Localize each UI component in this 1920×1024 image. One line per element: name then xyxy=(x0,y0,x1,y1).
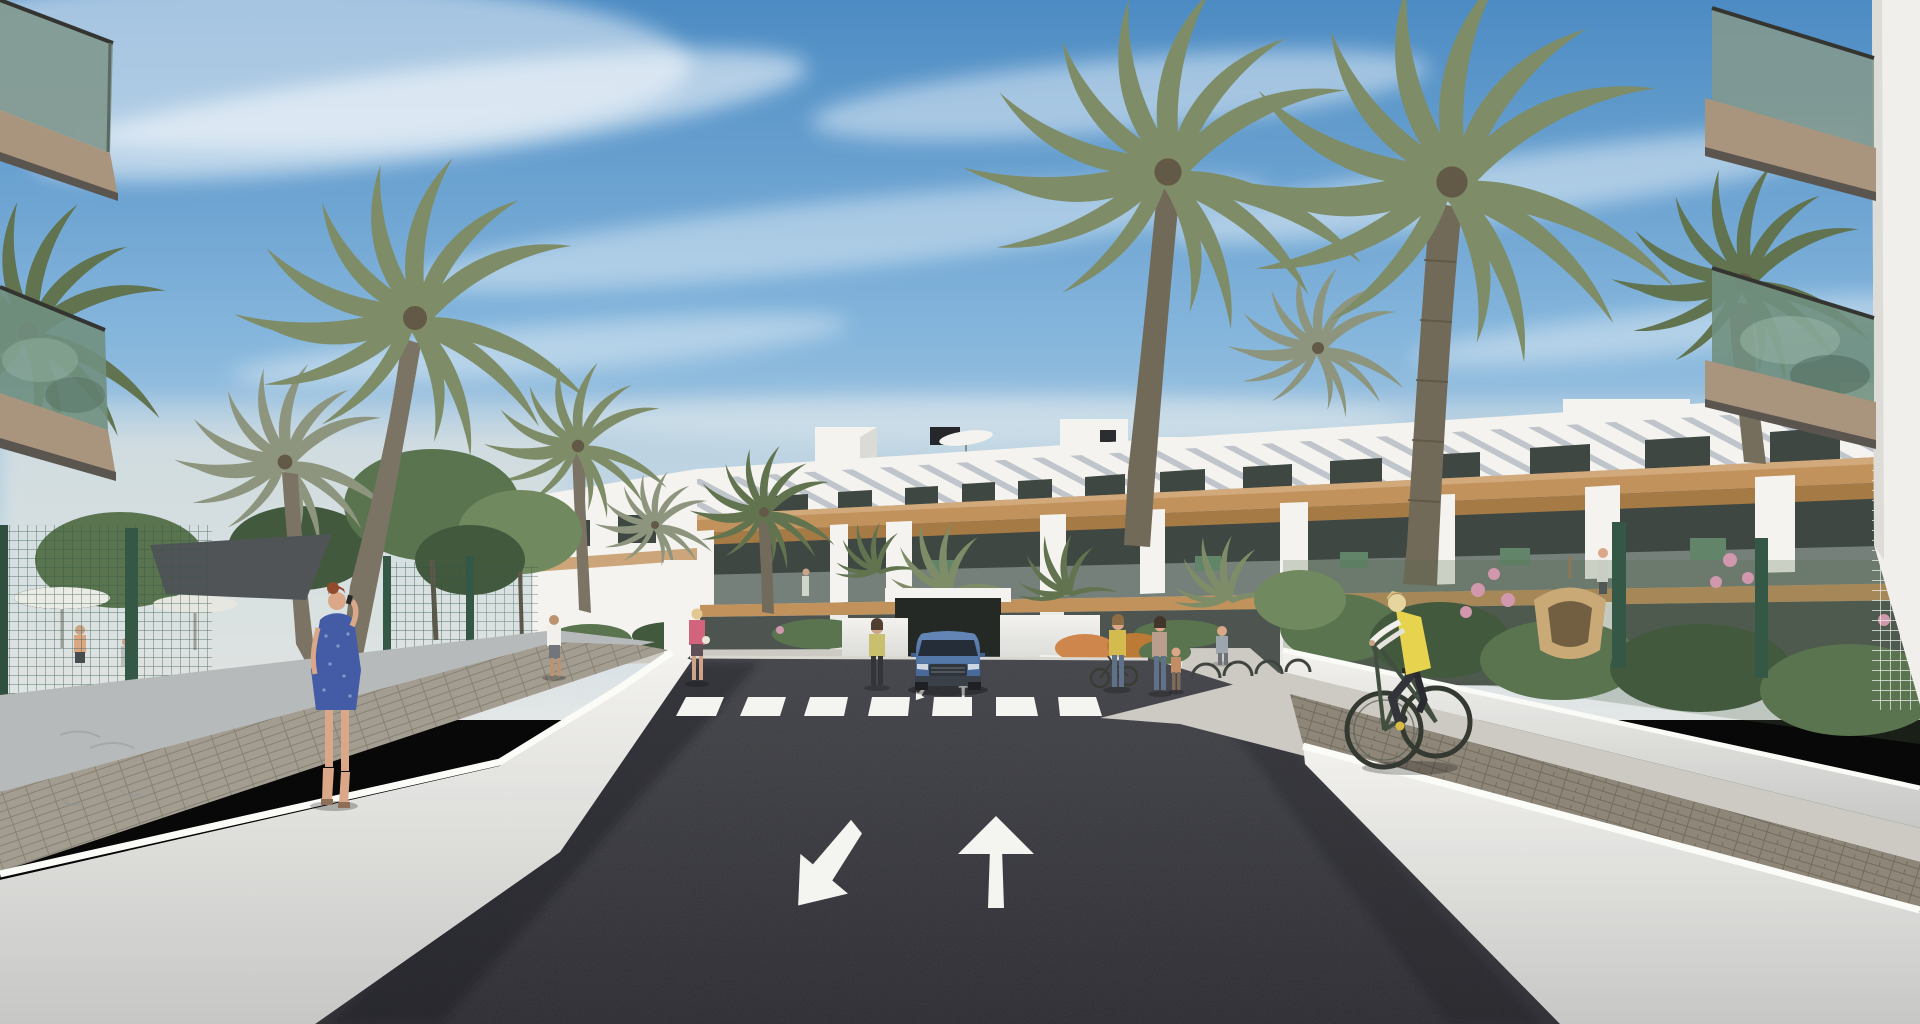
scene-svg xyxy=(0,0,1920,1024)
atmospheric-haze-overlay xyxy=(0,0,1920,1024)
rendering-canvas: 3D architectural visualization: a modern… xyxy=(0,0,1920,1024)
